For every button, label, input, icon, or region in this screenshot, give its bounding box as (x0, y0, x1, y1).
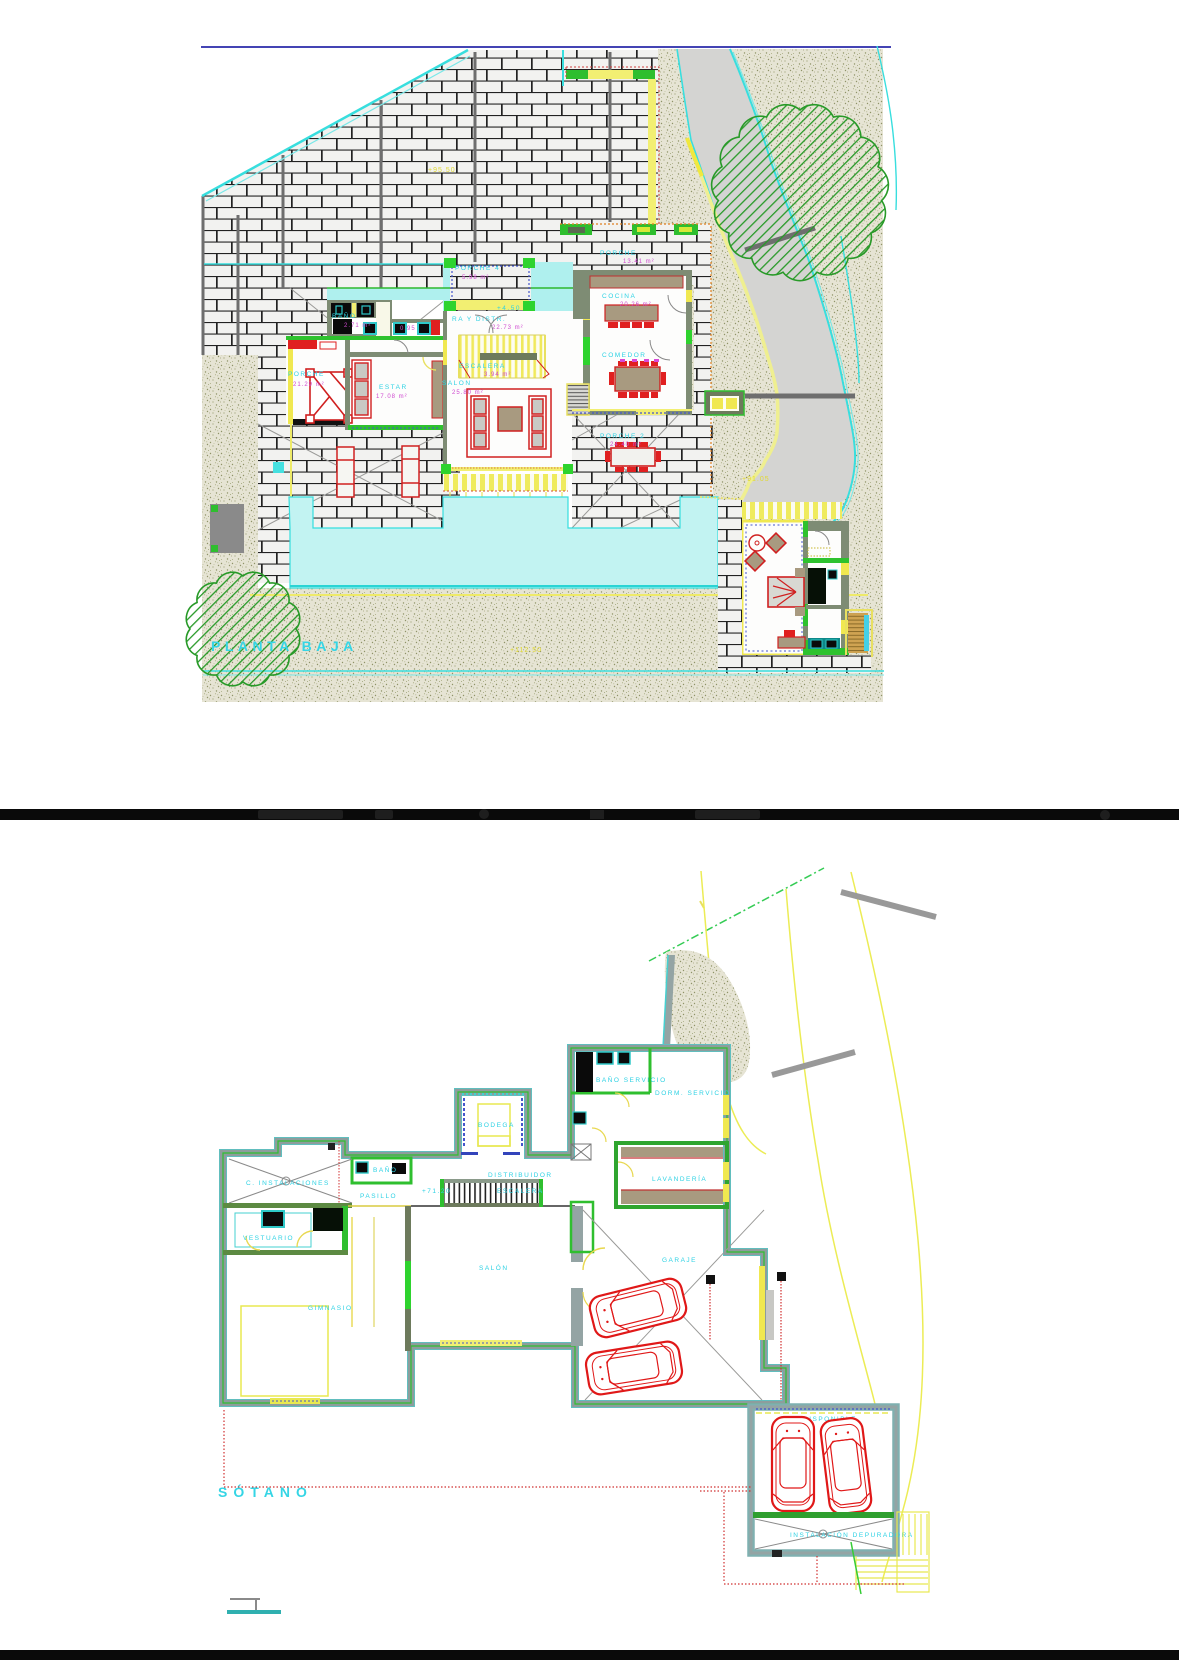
svg-text:C. INSTALACIONES: C. INSTALACIONES (246, 1180, 330, 1187)
svg-text:GARAJE: GARAJE (662, 1257, 697, 1264)
svg-text:+4.50: +4.50 (497, 305, 521, 312)
svg-text:+71.20: +71.20 (422, 1188, 451, 1195)
svg-text:SALÓN: SALÓN (479, 1263, 509, 1272)
svg-text:BAÑO: BAÑO (332, 311, 356, 320)
svg-text:13.41 m²: 13.41 m² (623, 259, 655, 265)
svg-text:0.95: 0.95 (400, 326, 416, 332)
svg-text:24.40 m²: 24.40 m² (610, 442, 642, 448)
svg-text:PORCHE: PORCHE (288, 371, 325, 378)
svg-text:BAÑO SERVICIO: BAÑO SERVICIO (596, 1075, 667, 1084)
svg-text:+112.50: +112.50 (510, 647, 542, 654)
svg-text:DORM. SERVICIO: DORM. SERVICIO (655, 1090, 730, 1097)
svg-text:GIMNASIO: GIMNASIO (308, 1305, 353, 1312)
svg-text:17.08 m²: 17.08 m² (376, 394, 408, 400)
svg-text:INSTALACIÓN DEPURADORA: INSTALACIÓN DEPURADORA (790, 1530, 914, 1539)
svg-text:2.71 m²: 2.71 m² (344, 323, 371, 329)
svg-text:PORCHE 2: PORCHE 2 (600, 433, 645, 440)
svg-text:ESCALERA: ESCALERA (459, 363, 506, 370)
svg-text:SÓTANO: SÓTANO (218, 1483, 313, 1500)
svg-text:BAÑO: BAÑO (373, 1165, 397, 1174)
svg-text:PASILLO: PASILLO (360, 1193, 397, 1200)
svg-text:20.26 m²: 20.26 m² (620, 302, 652, 308)
svg-text:+91.05: +91.05 (742, 476, 770, 483)
svg-text:PLANTA BAJA: PLANTA BAJA (211, 638, 358, 654)
svg-text:ESCALERA: ESCALERA (497, 1188, 544, 1195)
svg-text:PORCHE: PORCHE (600, 250, 637, 257)
svg-text:DISTRIBUIDOR: DISTRIBUIDOR (488, 1172, 553, 1179)
svg-text:BODEGA: BODEGA (478, 1122, 515, 1129)
svg-text:3.94 m²: 3.94 m² (484, 372, 511, 378)
svg-text:+95.50: +95.50 (428, 167, 456, 174)
svg-text:21.29 m²: 21.29 m² (293, 382, 325, 388)
svg-text:5.98 m²: 5.98 m² (462, 275, 489, 281)
svg-text:22.73 m²: 22.73 m² (492, 325, 524, 331)
svg-text:COMEDOR: COMEDOR (602, 352, 646, 359)
svg-text:ESTAR: ESTAR (379, 384, 408, 391)
svg-text:COCINA: COCINA (602, 293, 636, 300)
svg-text:LAVANDERÍA: LAVANDERÍA (652, 1174, 707, 1183)
svg-text:25.80 m²: 25.80 m² (452, 390, 484, 396)
svg-text:PORCHE 4: PORCHE 4 (455, 265, 500, 272)
svg-text:VESTUARIO: VESTUARIO (243, 1235, 294, 1242)
svg-text:SALON: SALON (442, 380, 472, 387)
